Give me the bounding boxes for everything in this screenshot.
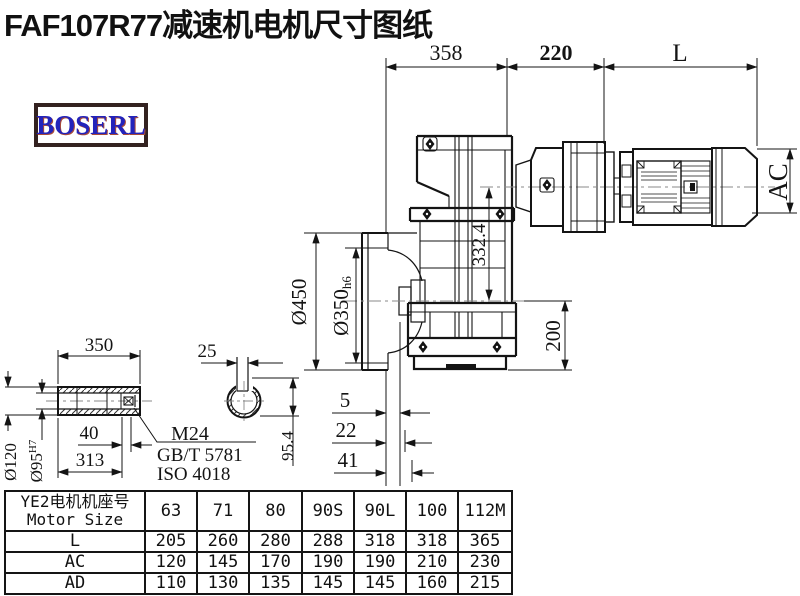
- cell: 190: [302, 552, 354, 573]
- cell: 215: [458, 573, 512, 594]
- cell: 260: [197, 531, 249, 552]
- header-cn: YE2电机机座号: [6, 493, 144, 511]
- dim-22: 22: [336, 418, 357, 442]
- cell: 318: [354, 531, 406, 552]
- cell: 190: [354, 552, 406, 573]
- dim-axis-offset: 332.4: [469, 223, 490, 266]
- dim-bore: Ø95H7: [27, 439, 46, 482]
- cell: 130: [197, 573, 249, 594]
- brand-logo-text: BOSERL: [36, 110, 146, 141]
- dim-AC: AC: [763, 163, 793, 201]
- page-title: FAF107R77减速机电机尺寸图纸: [4, 0, 432, 45]
- col-header: 100: [406, 491, 458, 531]
- cell: 145: [197, 552, 249, 573]
- input-adapter: [516, 142, 620, 232]
- col-header: 80: [249, 491, 302, 531]
- drawing-sheet: 358 220 L AC: [0, 0, 800, 596]
- dim-350: 350: [85, 335, 114, 356]
- output-flange: [362, 233, 425, 370]
- header-en: Motor Size: [6, 511, 144, 529]
- table-header-row: YE2电机机座号 Motor Size 63 71 80 90S 90L 100…: [5, 491, 512, 531]
- col-header: 90L: [354, 491, 406, 531]
- motor-size-table: YE2电机机座号 Motor Size 63 71 80 90S 90L 100…: [4, 490, 513, 595]
- cell: 120: [145, 552, 197, 573]
- cell: 210: [406, 552, 458, 573]
- dim-spigot: Ø350h6: [329, 276, 354, 336]
- dim-base-height: 200: [541, 320, 565, 352]
- dim-220: 220: [540, 40, 573, 65]
- row-label: L: [5, 531, 145, 552]
- row-label: AC: [5, 552, 145, 573]
- cell: 160: [406, 573, 458, 594]
- dim-5: 5: [340, 388, 351, 412]
- cell: 230: [458, 552, 512, 573]
- col-header: 71: [197, 491, 249, 531]
- dim-358: 358: [430, 40, 463, 65]
- cell: 318: [406, 531, 458, 552]
- cell: 205: [145, 531, 197, 552]
- dim-flange-od: Ø450: [287, 279, 311, 326]
- dim-40: 40: [80, 423, 99, 444]
- dim-key-width: 25: [198, 341, 217, 362]
- label-screw: M24: [171, 423, 209, 445]
- cell: 280: [249, 531, 302, 552]
- cell: 145: [302, 573, 354, 594]
- col-header: 63: [145, 491, 197, 531]
- label-std-gb: GB/T 5781: [157, 445, 243, 466]
- cell: 288: [302, 531, 354, 552]
- dim-41: 41: [338, 448, 359, 472]
- dim-313: 313: [76, 450, 105, 471]
- col-header: 112M: [458, 491, 512, 531]
- table-row: L 205 260 280 288 318 318 365: [5, 531, 512, 552]
- table-row: AD 110 130 135 145 145 160 215: [5, 573, 512, 594]
- dim-key-height: 95.4: [278, 431, 297, 461]
- row-label: AD: [5, 573, 145, 594]
- table-header-label: YE2电机机座号 Motor Size: [5, 491, 145, 531]
- table-row: AC 120 145 170 190 190 210 230: [5, 552, 512, 573]
- gearbox-bolts: [419, 138, 505, 353]
- cell: 365: [458, 531, 512, 552]
- adapter-bolt: [543, 179, 552, 191]
- gearbox-housing: [408, 136, 516, 369]
- cell: 145: [354, 573, 406, 594]
- cell: 170: [249, 552, 302, 573]
- cell: 135: [249, 573, 302, 594]
- label-std-iso: ISO 4018: [157, 464, 230, 485]
- dim-shaft-od: Ø120: [1, 443, 20, 481]
- col-header: 90S: [302, 491, 354, 531]
- brand-logo: BOSERL: [34, 103, 148, 147]
- dim-L: L: [672, 40, 687, 67]
- motor: [620, 148, 757, 226]
- cell: 110: [145, 573, 197, 594]
